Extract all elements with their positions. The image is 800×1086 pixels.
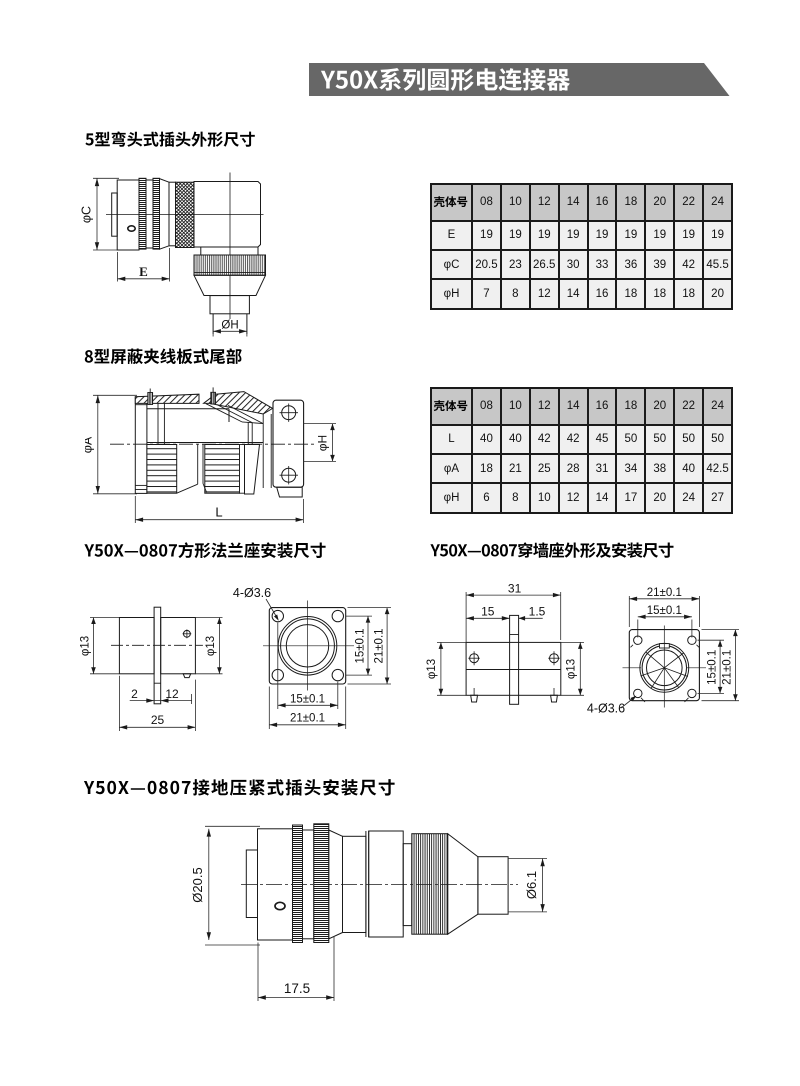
svg-text:21±0.1: 21±0.1 [290,713,325,725]
svg-text:Ø6.1: Ø6.1 [524,871,539,899]
svg-text:31: 31 [508,583,522,596]
svg-text:φH: φH [316,435,330,451]
svg-text:15±0.1: 15±0.1 [706,650,718,685]
svg-text:Ø20.5: Ø20.5 [190,867,205,902]
svg-text:21±0.1: 21±0.1 [374,628,386,663]
svg-text:25: 25 [151,713,165,727]
svg-text:12: 12 [165,687,179,701]
svg-text:15±0.1: 15±0.1 [355,628,367,663]
svg-text:4-Ø3.6: 4-Ø3.6 [587,702,625,716]
svg-text:15±0.1: 15±0.1 [290,694,325,706]
svg-text:φ13: φ13 [566,659,578,679]
svg-text:1.5: 1.5 [529,605,546,619]
svg-text:21±0.1: 21±0.1 [647,587,682,599]
svg-text:21±0.1: 21±0.1 [722,650,734,685]
svg-text:15±0.1: 15±0.1 [647,605,682,617]
svg-text:15: 15 [481,605,495,619]
svg-text:φ13: φ13 [426,659,438,679]
svg-text:2: 2 [131,687,138,701]
svg-text:E: E [139,264,148,279]
svg-text:ØH: ØH [221,320,238,332]
svg-text:φA: φA [85,436,95,453]
svg-text:φC: φC [80,206,94,223]
svg-text:φ13: φ13 [80,636,92,656]
svg-text:L: L [215,505,222,520]
svg-text:4-Ø3.6: 4-Ø3.6 [233,586,271,600]
svg-text:φ13: φ13 [205,636,217,656]
svg-text:17.5: 17.5 [284,981,310,996]
